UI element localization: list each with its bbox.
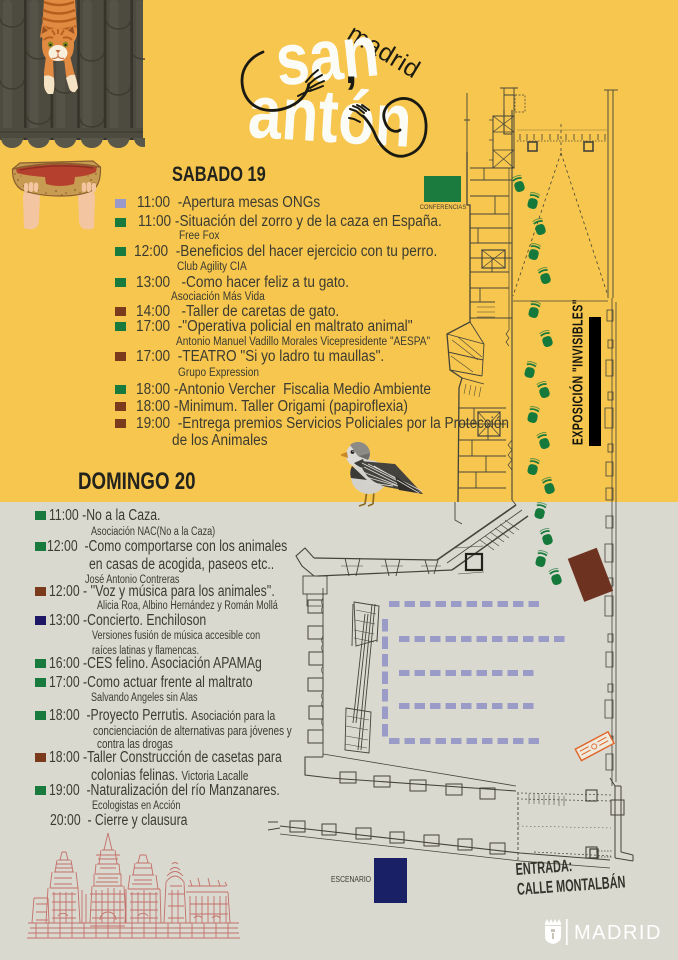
svg-text:MADRID: MADRID xyxy=(574,922,662,944)
